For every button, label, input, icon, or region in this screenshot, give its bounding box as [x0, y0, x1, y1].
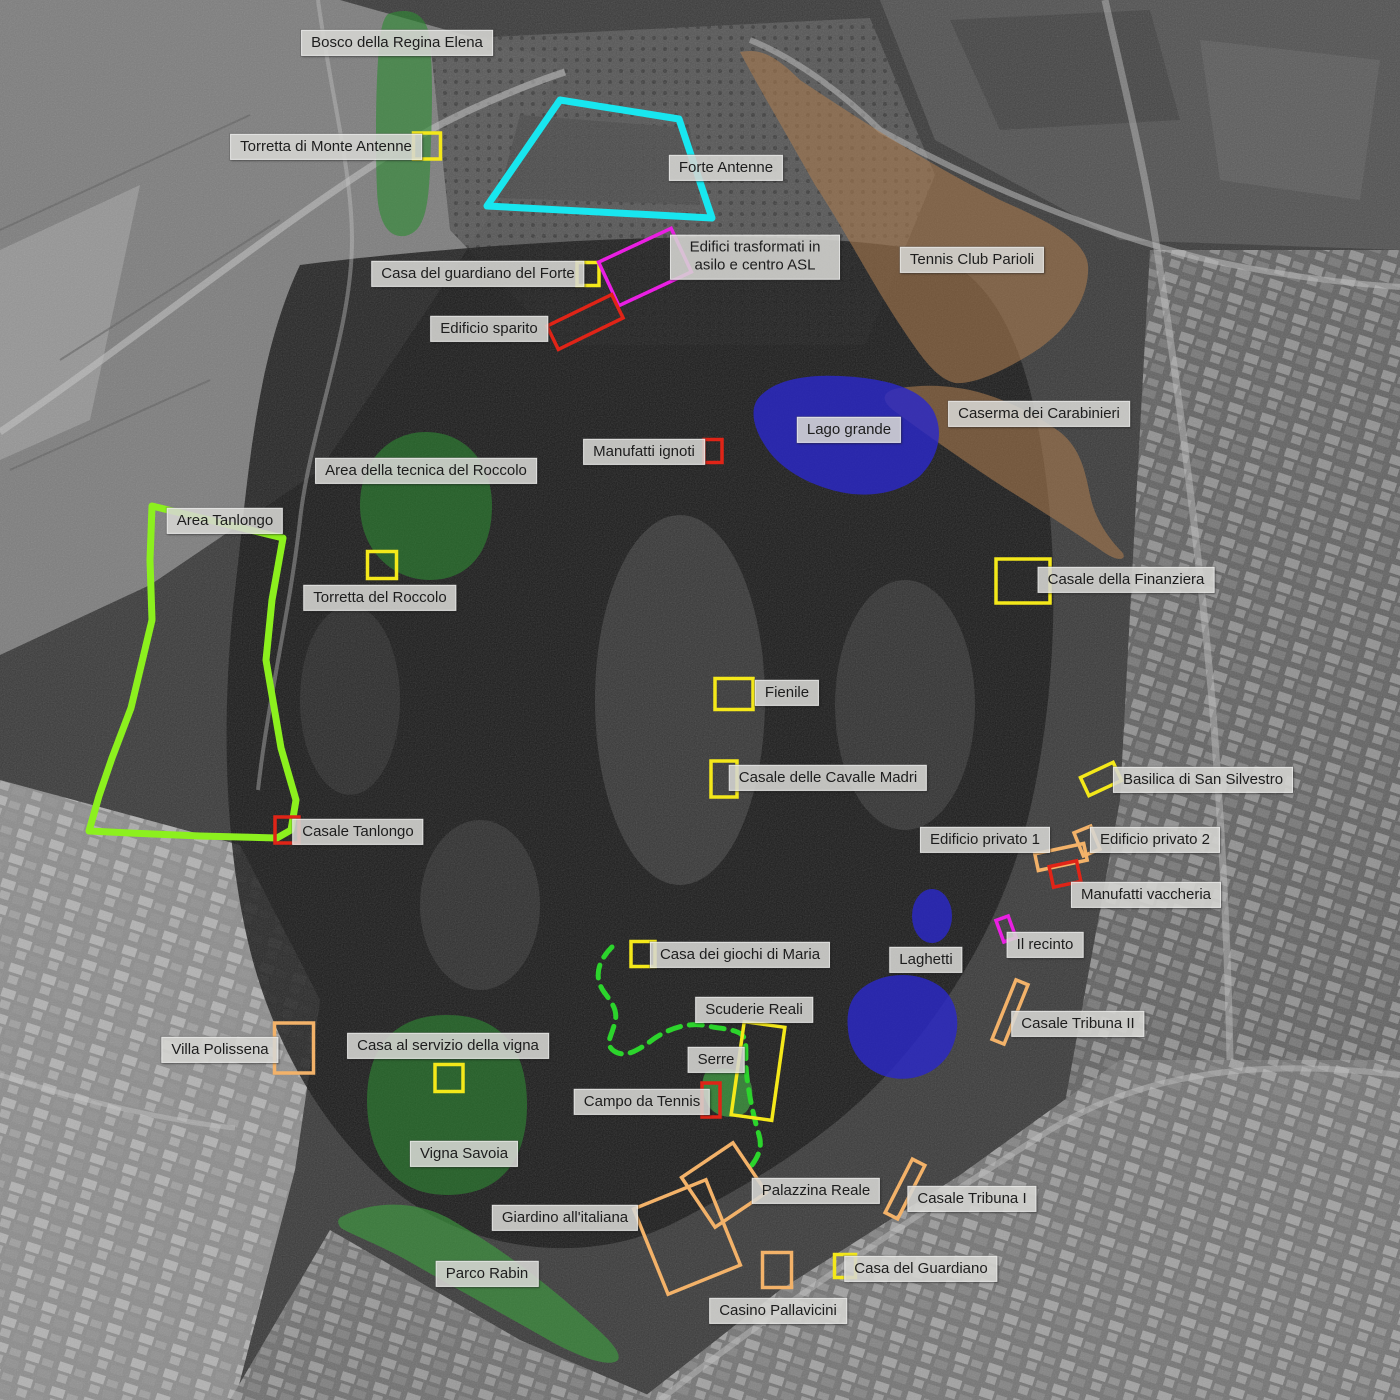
overlay-bosco-regina-elena [376, 11, 432, 236]
overlay-area-tecnica-roccolo [360, 432, 492, 580]
terrain-grain [0, 0, 1400, 1400]
annotated-aerial-map: Bosco della Regina ElenaTorretta di Mont… [0, 0, 1400, 1400]
overlay-vigna-savoia [367, 1015, 527, 1195]
map-base-svg [0, 0, 1400, 1400]
overlay-laghetto-grande [848, 975, 958, 1079]
overlay-laghetto-piccolo [912, 889, 952, 943]
terrain-layer [0, 0, 1400, 1400]
